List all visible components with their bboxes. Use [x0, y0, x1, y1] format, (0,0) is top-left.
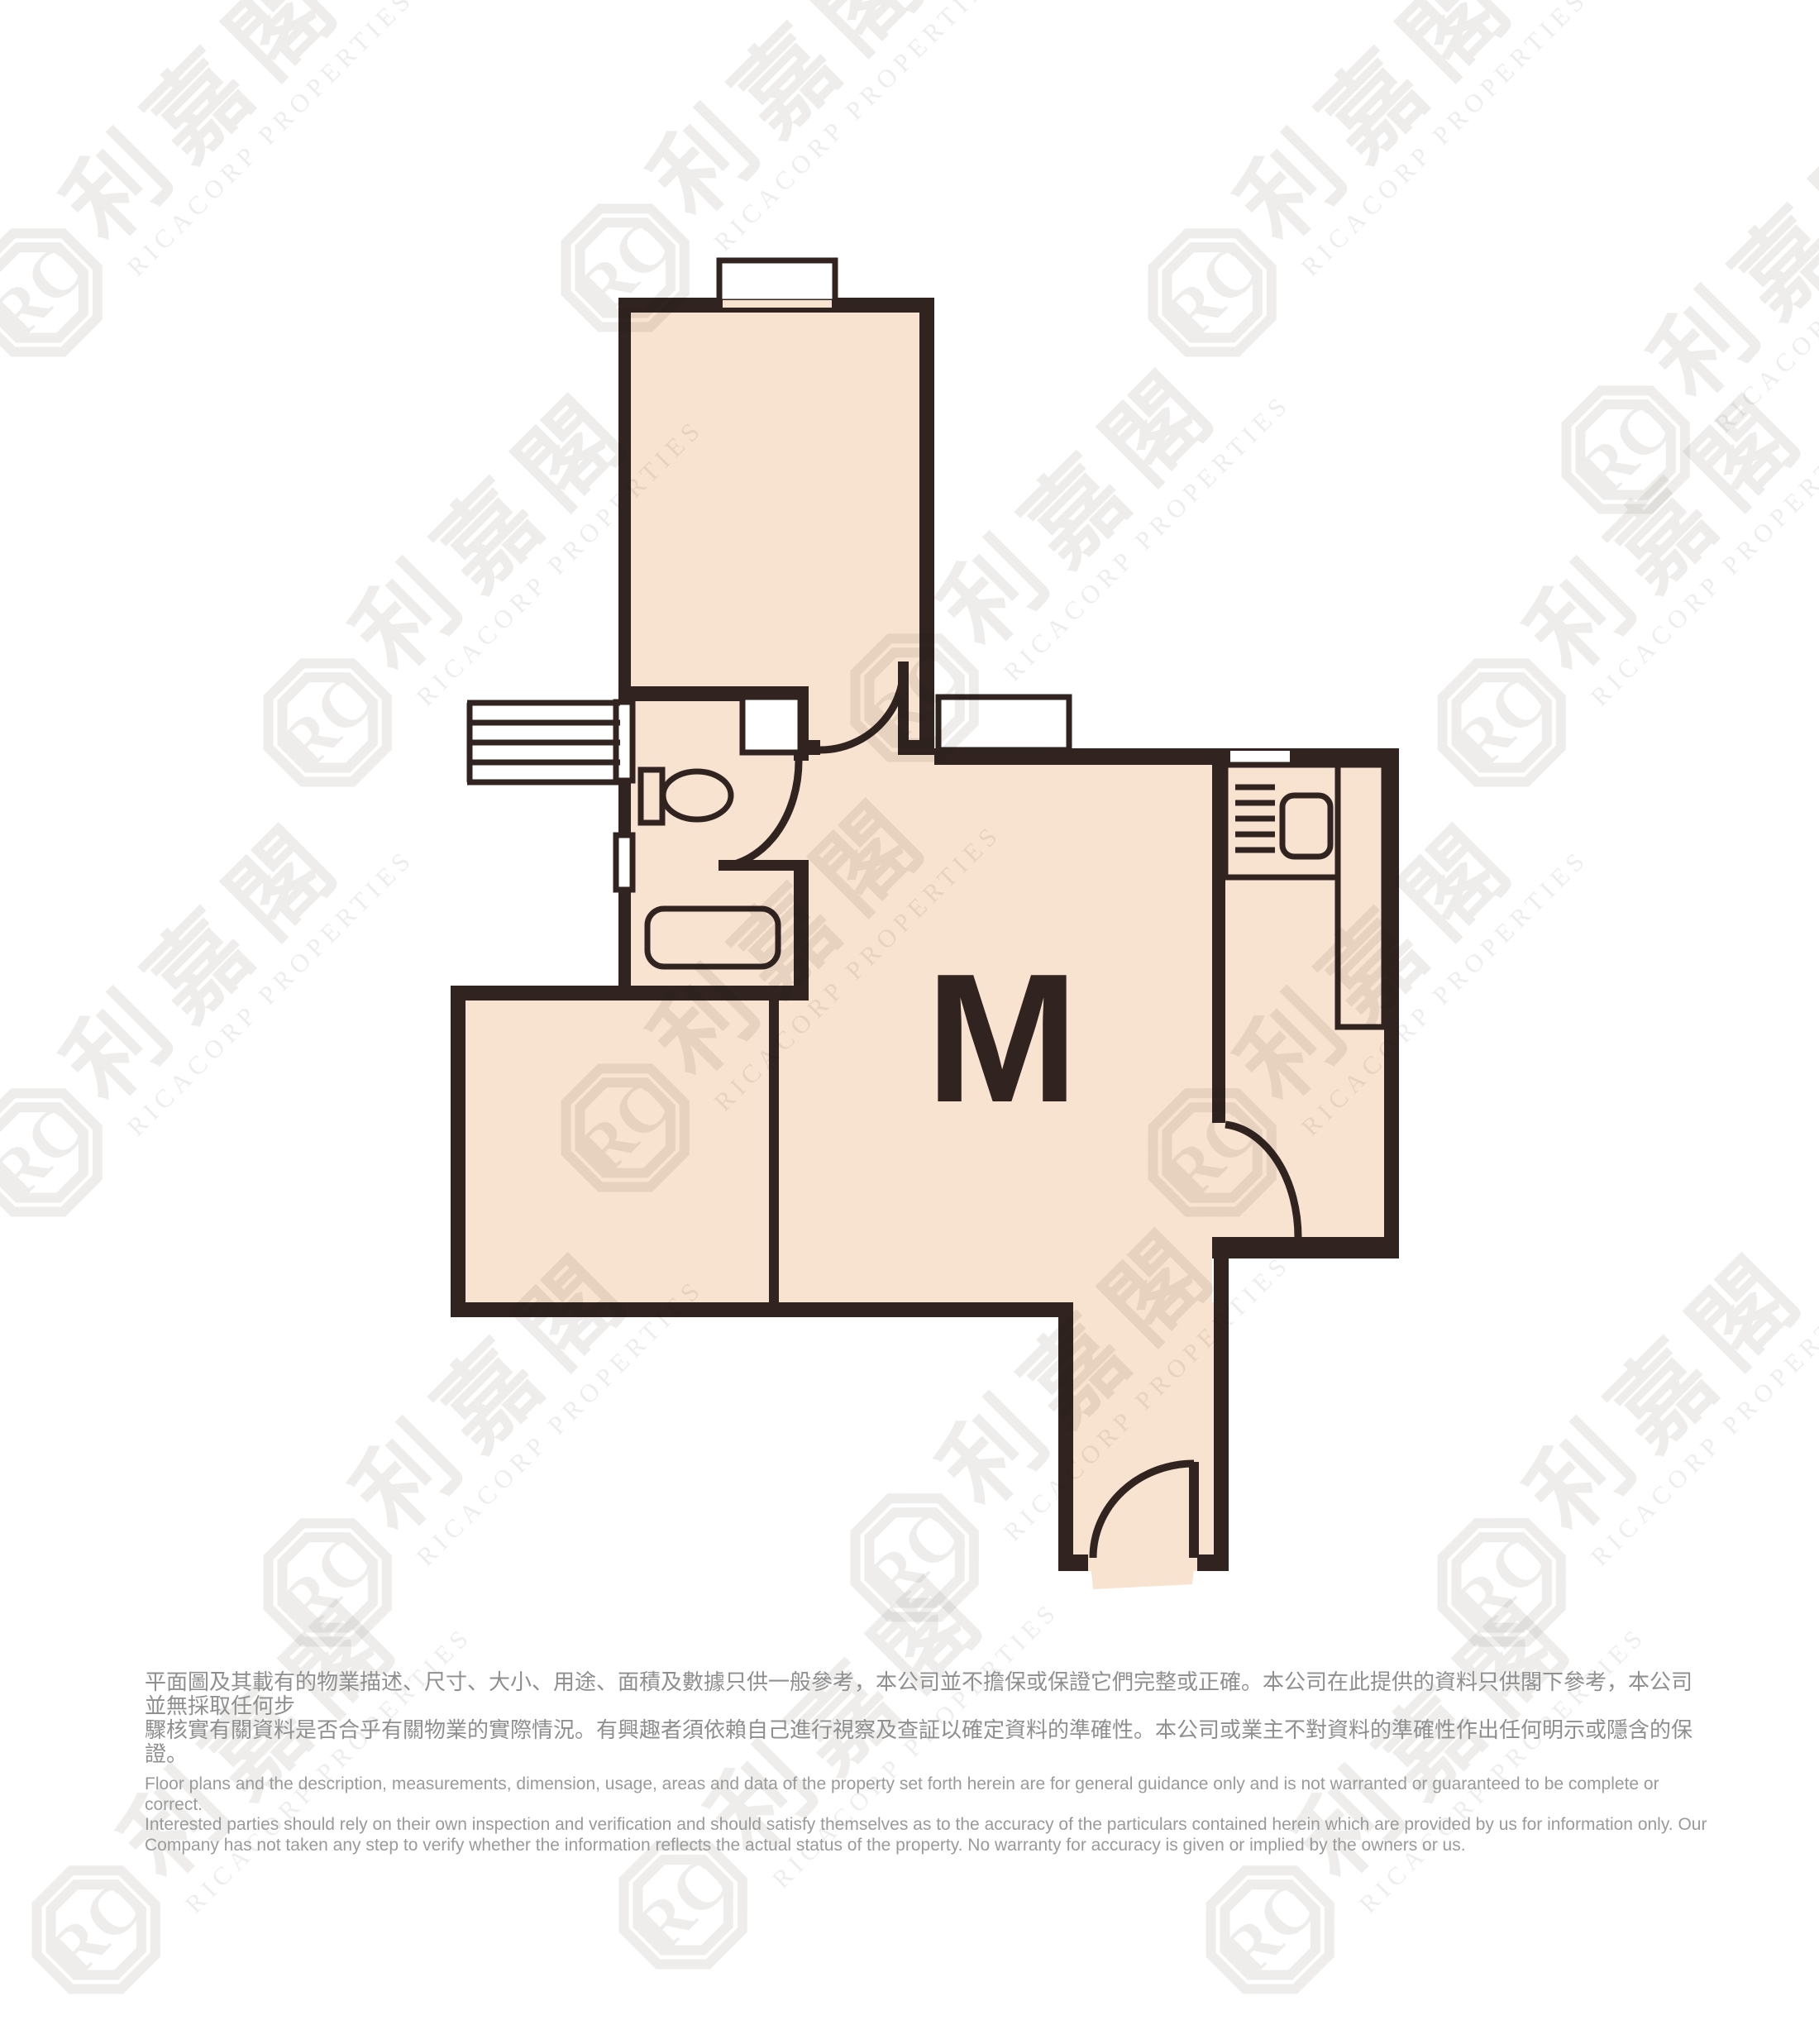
kitchen-side-counter: [1338, 765, 1384, 1027]
second-room-floor: [451, 990, 774, 1317]
ricacorp-logo-icon: RC: [2, 1836, 189, 2023]
room-divider: [769, 1001, 779, 1302]
disclaimer-zh: 平面圖及其載有的物業描述、尺寸、大小、用途、面積及數據只供一般參考，本公司並不擔…: [145, 1670, 1707, 1766]
bottom-wall: [451, 1302, 1073, 1317]
kitchen-bottom-wall: [1212, 1237, 1399, 1258]
bathroom-bottom-wall: [451, 986, 809, 1001]
shaft: [742, 697, 800, 752]
disclaimer-en-line: Company has not taken any step to verify…: [145, 1836, 1707, 1856]
entrance-threshold: [1090, 1550, 1196, 1589]
sink-icon: [1282, 795, 1330, 857]
bedroom-right-wall: [919, 298, 934, 755]
unit-label: M: [926, 936, 1079, 1141]
bedroom-bottom-stub-left: [809, 740, 820, 755]
bedroom-window: [719, 260, 835, 302]
floor-plan-svg: M: [0, 0, 1819, 1819]
corridor-floor: [1058, 1302, 1229, 1571]
disclaimer-en-line: Floor plans and the description, measure…: [145, 1774, 1707, 1815]
watermark-logo-text: RC: [33, 1867, 156, 1990]
living-window: [938, 697, 1069, 750]
floor-plan-page: M RC 利嘉閣 RICACORP PROPERTIES RC 利嘉閣 RICA…: [0, 0, 1819, 1819]
disclaimer-en-line: Interested parties should rely on their …: [145, 1815, 1707, 1836]
disclaimer-zh-line: 平面圖及其載有的物業描述、尺寸、大小、用途、面積及數據只供一般參考，本公司並不擔…: [145, 1670, 1707, 1718]
kitchen-door-gap: [1212, 1123, 1225, 1237]
bedroom-window-sill-line: [723, 308, 832, 312]
second-room-left-wall: [451, 986, 465, 1317]
bedroom-bottom-stub-right: [909, 740, 934, 755]
corridor-left-wall: [1058, 1317, 1073, 1571]
bathroom-right-wall-lower: [794, 860, 809, 1001]
toilet-icon: [641, 770, 731, 823]
kitchen-window-strip: [1230, 751, 1290, 762]
watermark-logo-text: RC: [1207, 1867, 1330, 1990]
disclaimer-zh-line: 驟核實有關資料是否合乎有關物業的實際情況。有興趣者須依賴自己進行視察及查証以確定…: [145, 1718, 1707, 1766]
corridor-right-stub: [1197, 1554, 1229, 1571]
corridor-left-stub: [1058, 1554, 1088, 1571]
bathtub-icon: [647, 909, 778, 967]
disclaimer-en: Floor plans and the description, measure…: [145, 1774, 1707, 1855]
entrance-door-leaf: [1189, 1462, 1199, 1558]
watermark-logo-text: RC: [620, 1842, 743, 1965]
bathroom-window-lower: [616, 835, 633, 890]
ricacorp-logo-icon: RC: [1177, 1836, 1363, 2023]
ac-louvre-icon: [467, 703, 620, 782]
corridor-right-wall: [1214, 1258, 1229, 1571]
disclaimer: 平面圖及其載有的物業描述、尺寸、大小、用途、面積及數據只供一般參考，本公司並不擔…: [145, 1670, 1707, 1855]
left-wall: [618, 298, 631, 1001]
